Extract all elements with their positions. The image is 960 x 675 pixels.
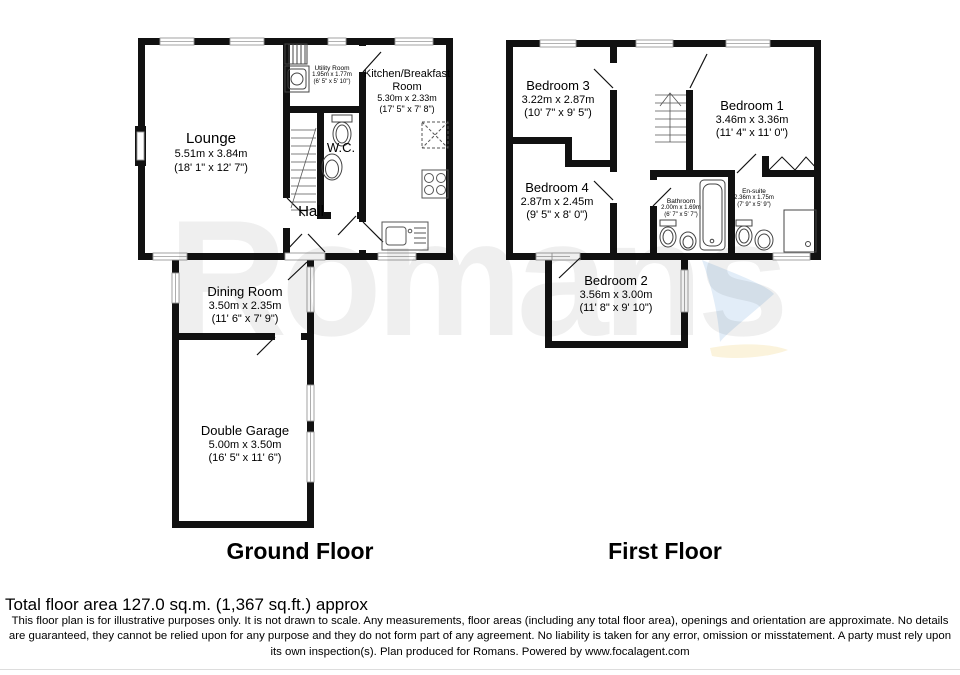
wc-sink-icon — [322, 154, 342, 180]
room-label-dining: Dining Room 3.50m x 2.35m (11' 6" x 7' 9… — [207, 284, 282, 327]
room-label-hall: Hall — [298, 203, 324, 221]
stairs-icon — [655, 93, 686, 142]
room-label-garage: Double Garage 5.00m x 3.50m (16' 5" x 11… — [201, 423, 289, 466]
floorplan-page: { "watermark": "Romans", "accent_colors"… — [0, 0, 960, 675]
room-label-bathroom: Bathroom 2.00m x 1.69m (6' 7" x 5' 7") — [661, 198, 701, 219]
watermark-swoosh-icon — [672, 248, 802, 373]
room-label-wc: W.C. — [327, 140, 355, 156]
disclaimer-text: This floor plan is for illustrative purp… — [4, 614, 956, 660]
ground-floor-plan: Lounge 5.51m x 3.84m (18' 1" x 12' 7") U… — [135, 30, 465, 535]
bottom-divider — [0, 669, 960, 670]
bathtub-icon — [700, 180, 725, 250]
room-label-utility: Utility Room 1.95m x 1.77m (6' 5" x 5' 1… — [312, 65, 352, 86]
first-floor-title: First Floor — [500, 538, 830, 565]
stairs-icon — [291, 128, 316, 210]
room-label-bedroom2: Bedroom 2 3.56m x 3.00m (11' 8" x 9' 10"… — [580, 273, 653, 316]
kitchen-units-icon — [382, 122, 448, 250]
room-label-kitchen: Kitchen/Breakfast Room 5.30m x 2.33m (17… — [361, 68, 453, 115]
room-label-bedroom1: Bedroom 1 3.46m x 3.36m (11' 4" x 11' 0"… — [716, 98, 789, 141]
ensuite-sink-icon — [755, 230, 773, 250]
ground-floor-title: Ground Floor — [135, 538, 465, 565]
room-label-bedroom3: Bedroom 3 3.22m x 2.87m (10' 7" x 9' 5") — [522, 78, 595, 121]
room-label-lounge: Lounge 5.51m x 3.84m (18' 1" x 12' 7") — [174, 130, 248, 175]
room-label-ensuite: En-suite 2.36m x 1.75m (7' 9" x 5' 9") — [734, 188, 774, 209]
total-floor-area: Total floor area 127.0 sq.m. (1,367 sq.f… — [5, 595, 368, 615]
shower-icon — [784, 210, 816, 252]
bathroom-toilet-icon — [660, 220, 676, 247]
ensuite-toilet-icon — [736, 220, 752, 246]
room-label-bedroom4: Bedroom 4 2.87m x 2.45m (9' 5" x 8' 0") — [521, 180, 594, 223]
